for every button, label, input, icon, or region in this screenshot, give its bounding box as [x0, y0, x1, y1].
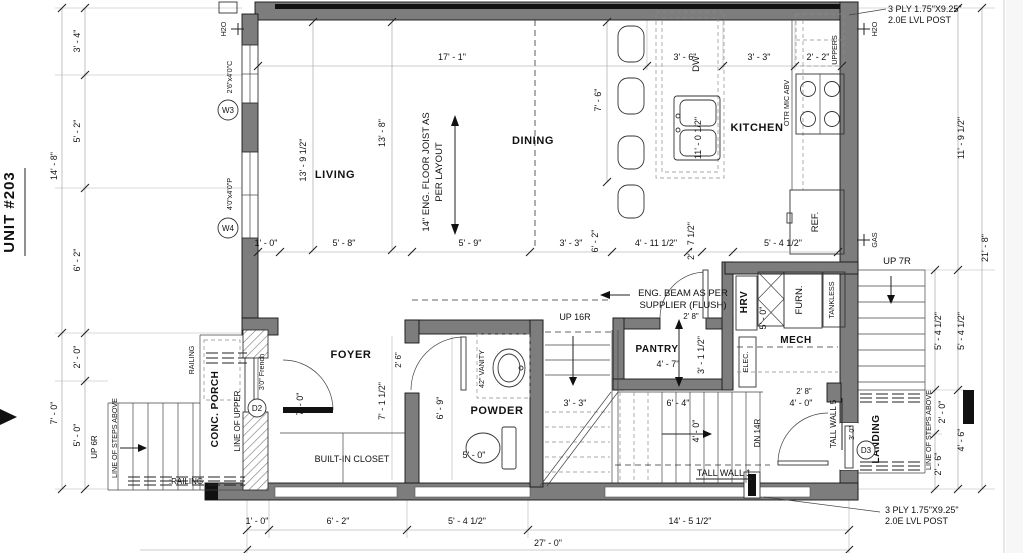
powder-door [411, 337, 466, 390]
entry-door [283, 360, 333, 413]
window-w4-size: 4'0"x4'0"P [225, 178, 234, 210]
dim-left-2: 5' - 2" [72, 120, 82, 143]
dim-mech-door-clear: 4' - 0" [790, 398, 813, 408]
dim-right-1: 11' - 9 1/2" [956, 117, 966, 159]
beam-note-1: ENG. BEAM AS PER [638, 288, 728, 299]
room-pantry: PANTRY [636, 344, 679, 355]
window-w3-tag: W3 [218, 100, 238, 120]
window-w3 [242, 45, 258, 103]
d3-size-label: 3' 0" [847, 426, 856, 440]
window-w3-label: W3 [222, 106, 235, 115]
otr-mic-label: OTR MIC ABV [782, 80, 791, 127]
dim-stair-1: 3' - 3" [564, 398, 587, 408]
dim-left-5: 5' - 0" [72, 424, 82, 447]
up6r-label: UP 6R [90, 435, 99, 459]
window-w3-size: 2'6"x4'0"C [225, 61, 234, 94]
tall-wall-5-label: TALL WALL 5 [829, 399, 838, 448]
dim-left-total-bottom: 7' - 0" [49, 402, 59, 425]
gas-label: GAS [870, 232, 879, 247]
door-d3-label: D3 [861, 446, 872, 455]
floor-plan-drawing: UNIT #203 LIVING DINING KITCHEN FOYER PO… [0, 0, 1023, 553]
dim-mid-3: 5' - 9" [459, 238, 482, 248]
dim-mid-2: 5' - 8" [333, 238, 356, 248]
window-w4 [242, 152, 258, 238]
room-closet: BUILT-IN CLOSET [315, 454, 390, 464]
dim-mid-5: 6' - 2" [590, 230, 600, 253]
dim-mid-1: 1' - 0" [255, 238, 278, 248]
window-w4-tag: W4 [218, 218, 238, 238]
dim-right-4: 5' - 4 1/2" [956, 312, 966, 350]
ref-label: REF. [810, 212, 821, 233]
railing-top-label: RAILING [187, 345, 196, 374]
tankless-label: TANKLESS [827, 281, 836, 318]
dim-left-3: 6' - 2" [72, 249, 82, 272]
dim-foyer-w: 7' - 0" [295, 393, 305, 416]
vanity-label: 42" VANITY [477, 350, 486, 388]
dim-powder-door: 2' 6" [394, 352, 403, 368]
lvl-note-bottom-1: 3 PLY 1.75"X9.25" [885, 505, 959, 515]
dim-left-4: 2' - 0" [72, 346, 82, 369]
h2o-left-label: H2O [219, 21, 228, 36]
room-kitchen: KITCHEN [730, 122, 783, 134]
stair-up16r [540, 330, 618, 486]
dim-left-total-top: 14' - 8" [49, 152, 59, 180]
dim-island: 11' - 0 1/2" [693, 117, 703, 159]
lvl-note-bottom-2: 2.0E LVL POST [885, 516, 949, 526]
dim-right-5: 2' - 0" [937, 401, 947, 424]
floor-plan-sheet: UNIT #203 LIVING DINING KITCHEN FOYER PO… [0, 0, 1023, 553]
door-d2-label: D2 [252, 404, 263, 413]
dim-right-6: 2' - 6" [933, 453, 943, 476]
lvl-note-top-1: 3 PLY 1.75"X9.25" [888, 4, 962, 14]
beam-leader-arrow [600, 291, 630, 299]
dim-stair-3: 4' - 0" [691, 420, 701, 443]
dim-mid-7: 2' - 7 1/2" [686, 222, 696, 260]
up7r-label: UP 7R [883, 256, 911, 267]
tall-wall-1-label: TALL WALL 1 [697, 468, 751, 478]
gas-symbol [857, 234, 870, 246]
edge-marker-icon [0, 409, 17, 425]
bar-stools [618, 26, 644, 218]
dim-living-depth2: 13' - 8" [377, 119, 387, 147]
dim-pantry-h: 3' - 1 1/2" [696, 336, 706, 374]
line-of-steps-left: LINE OF STEPS ABOVE [110, 398, 119, 478]
sheet-edge [1004, 0, 1023, 553]
dim-right-3: 5' - 4 1/2" [933, 312, 943, 350]
dim-powder-d: 6' - 9" [435, 397, 445, 420]
mech-door [778, 413, 828, 465]
dim-top-3: 3' - 3" [748, 52, 771, 62]
dim-bottom-3: 5' - 4 1/2" [448, 516, 486, 526]
lvl-note-top-2: 2.0E LVL POST [888, 15, 952, 25]
powder-toilet [466, 427, 516, 469]
dim-living-depth: 13' - 9 1/2" [298, 139, 308, 182]
dim-powder-w: 5' - 0" [463, 450, 486, 460]
elec-label: ELEC. [741, 352, 750, 373]
dim-bottom-4: 14' - 5 1/2" [669, 516, 712, 526]
joist-span-arrow [451, 115, 459, 235]
dim-dining-depth: 7' - 6" [593, 89, 603, 112]
dim-pantry-door: 2' 8" [683, 312, 699, 321]
hrv-label: HRV [739, 291, 750, 313]
room-foyer: FOYER [331, 349, 372, 361]
dim-right-2: 21' - 8" [980, 234, 990, 262]
dim-mech-door-w: 2' 8" [796, 387, 812, 396]
h2o-right-label: H2O [870, 21, 879, 36]
up16r-label: UP 16R [559, 312, 591, 322]
dim-bottom-total: 27' - 0" [534, 538, 562, 548]
room-dining: DINING [512, 135, 554, 147]
dw-label: DW [691, 56, 702, 72]
door-d2-tag: D2 [248, 399, 266, 417]
dim-mech: 5' - 0" [758, 307, 768, 330]
dim-bottom-2: 6' - 2" [327, 516, 350, 526]
line-of-steps-right: LINE OF STEPS ABOVE [924, 390, 933, 470]
porch-steps [108, 335, 247, 490]
dim-mid-4: 3' - 3" [560, 238, 583, 248]
railing-bottom-label: :RAILING [169, 477, 203, 486]
kitchen-island [656, 12, 724, 178]
dim-top-1: 17' - 1" [438, 52, 466, 62]
d2-size-label: 3'0" French [257, 354, 266, 390]
door-d3-tag: D3 [857, 441, 875, 459]
joist-note-2: PER LAYOUT [434, 142, 445, 202]
window-w4-label: W4 [222, 224, 235, 233]
dim-top-4: 2' - 2" [807, 52, 830, 62]
room-living: LIVING [315, 169, 355, 181]
furn-label: FURN. [794, 285, 805, 314]
dim-foyer-d: 7' - 1 1/2" [377, 382, 387, 420]
unit-title: UNIT #203 [1, 171, 18, 253]
line-of-upper-label: LINE OF UPPER [233, 390, 242, 451]
room-conc-porch: CONC. PORCH [210, 371, 221, 448]
dim-left-1: 3' - 4" [72, 30, 82, 53]
joist-note-1: 14" ENG. FLOOR JOIST AS [421, 112, 432, 231]
dim-mid-6: 4' - 11 1/2" [635, 238, 677, 248]
room-mech: MECH [780, 335, 811, 346]
uppers-label: UPPERS [830, 35, 839, 65]
beam-note-2: SUPPLIER (FLUSH) [639, 300, 726, 311]
dim-stair-2: 6' - 4" [667, 398, 690, 408]
h2o-symbol-right [857, 23, 870, 35]
dim-mid-8: 5' - 4 1/2" [764, 238, 802, 248]
dim-pantry-w: 4' - 7" [657, 359, 680, 369]
dn14r-label: DN 14R [753, 419, 762, 448]
dim-right-7: 4' - 6" [956, 429, 966, 452]
room-powder: POWDER [470, 405, 523, 417]
dim-bottom-1: 1' - 0" [246, 516, 269, 526]
